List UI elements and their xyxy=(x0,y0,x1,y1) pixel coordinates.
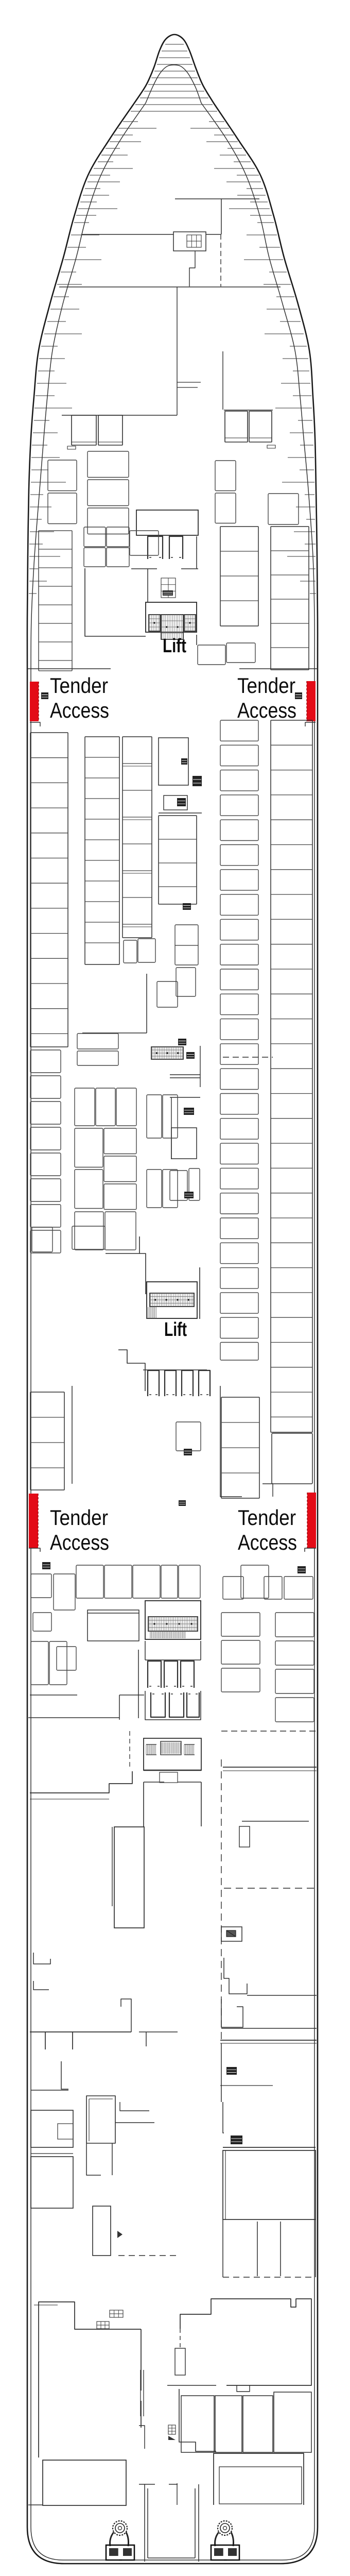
svg-text:Tender: Tender xyxy=(50,1505,108,1530)
svg-text:Tender: Tender xyxy=(50,673,108,698)
svg-text:Access: Access xyxy=(50,1530,109,1554)
svg-text:Tender: Tender xyxy=(237,673,295,698)
svg-text:Access: Access xyxy=(237,698,296,722)
svg-text:Access: Access xyxy=(50,698,109,722)
svg-text:Lift: Lift xyxy=(164,1319,187,1341)
svg-text:Lift: Lift xyxy=(163,635,186,657)
svg-text:Access: Access xyxy=(238,1530,297,1554)
svg-text:Tender: Tender xyxy=(238,1505,296,1530)
